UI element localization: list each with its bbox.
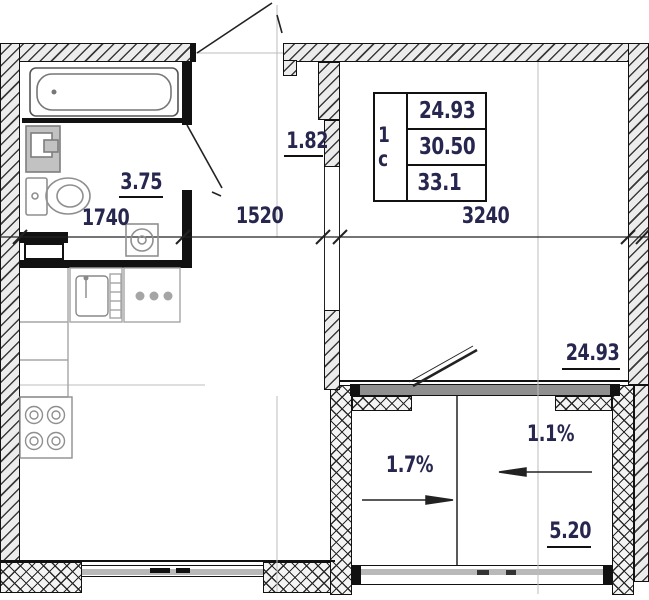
glazing-mullion [506, 570, 516, 575]
slope-arrow-right-head [499, 468, 526, 476]
kitchen-sink-bowl [76, 276, 108, 316]
bathroom-door-arc-tick [212, 192, 221, 196]
range-knob [136, 292, 145, 301]
slope-arrow-left-head [426, 496, 453, 504]
floor-plan: 1 с 24.93 30.50 33.1 3.75 1.82 24.93 5.2… [0, 0, 649, 600]
glazing-post-right [603, 565, 612, 585]
area-row-apartment: 30.50 [408, 130, 485, 166]
dimension-line-group [0, 230, 649, 244]
apartment-info-table: 1 с 24.93 30.50 33.1 [373, 92, 487, 202]
bathroom-sink-tap [44, 140, 58, 152]
range-knob [150, 292, 159, 301]
slope-right-label: 1.1% [521, 424, 573, 446]
glazing-mullion [477, 570, 489, 575]
toilet-tank [26, 178, 47, 215]
bathtub-drain [52, 90, 57, 95]
cooktop-burners [26, 407, 65, 450]
area-row-living: 24.93 [408, 94, 485, 130]
washing-machine-drum [131, 229, 153, 251]
kitchen-faucet-base [84, 276, 89, 281]
balcony-details [150, 384, 620, 585]
hall-area-label: 1.82 [281, 131, 325, 153]
balcony-window-sash [413, 350, 477, 386]
dimension-3240: 3240 [456, 206, 510, 228]
balcony-area-underline [547, 546, 591, 548]
window-band-cap-left [350, 384, 360, 396]
slope-left-label: 1.7% [380, 455, 432, 477]
hall-area-underline [284, 155, 323, 157]
toilet-bowl-inner [57, 185, 83, 207]
glazing-post-left [352, 565, 361, 585]
area-row-total: 33.1 [408, 166, 485, 200]
entry-door-leaf [197, 3, 272, 53]
window-mullion [150, 568, 170, 573]
range-knob [164, 292, 173, 301]
window-mullion [176, 568, 190, 573]
toilet-button [32, 193, 38, 199]
area-cells: 24.93 30.50 33.1 [408, 94, 485, 200]
dimension-1740: 1740 [76, 208, 130, 230]
dimension-1520: 1520 [230, 206, 284, 228]
living-room-area-underline [562, 368, 620, 370]
balcony-area-label: 5.20 [544, 521, 594, 543]
cooktop [20, 397, 72, 458]
kitchen-fixtures [20, 268, 180, 458]
bathroom-area-label: 3.75 [113, 172, 169, 194]
plan-linework [0, 0, 649, 600]
bathroom-door-leaf [187, 125, 222, 188]
bathroom-area-underline [119, 196, 163, 198]
entry-door-arc-tick [277, 15, 282, 33]
bathtub-inner [37, 74, 171, 110]
balcony-window-sash-2 [409, 346, 473, 382]
dish-rack [110, 274, 121, 318]
window-band-cap-right [610, 384, 620, 396]
unit-type-cell: 1 с [375, 94, 408, 200]
living-room-area-label: 24.93 [559, 343, 623, 365]
